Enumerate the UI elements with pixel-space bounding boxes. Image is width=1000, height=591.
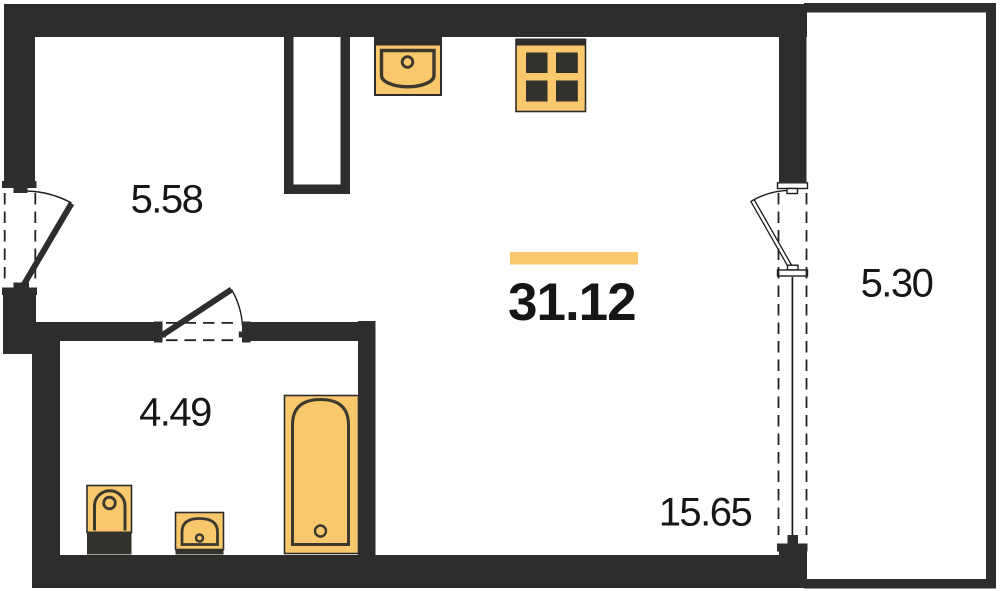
svg-text:15.65: 15.65 bbox=[659, 491, 752, 535]
svg-text:4.49: 4.49 bbox=[139, 391, 211, 435]
svg-text:5.58: 5.58 bbox=[131, 178, 203, 222]
svg-text:31.12: 31.12 bbox=[508, 273, 636, 332]
svg-text:5.30: 5.30 bbox=[861, 262, 933, 306]
